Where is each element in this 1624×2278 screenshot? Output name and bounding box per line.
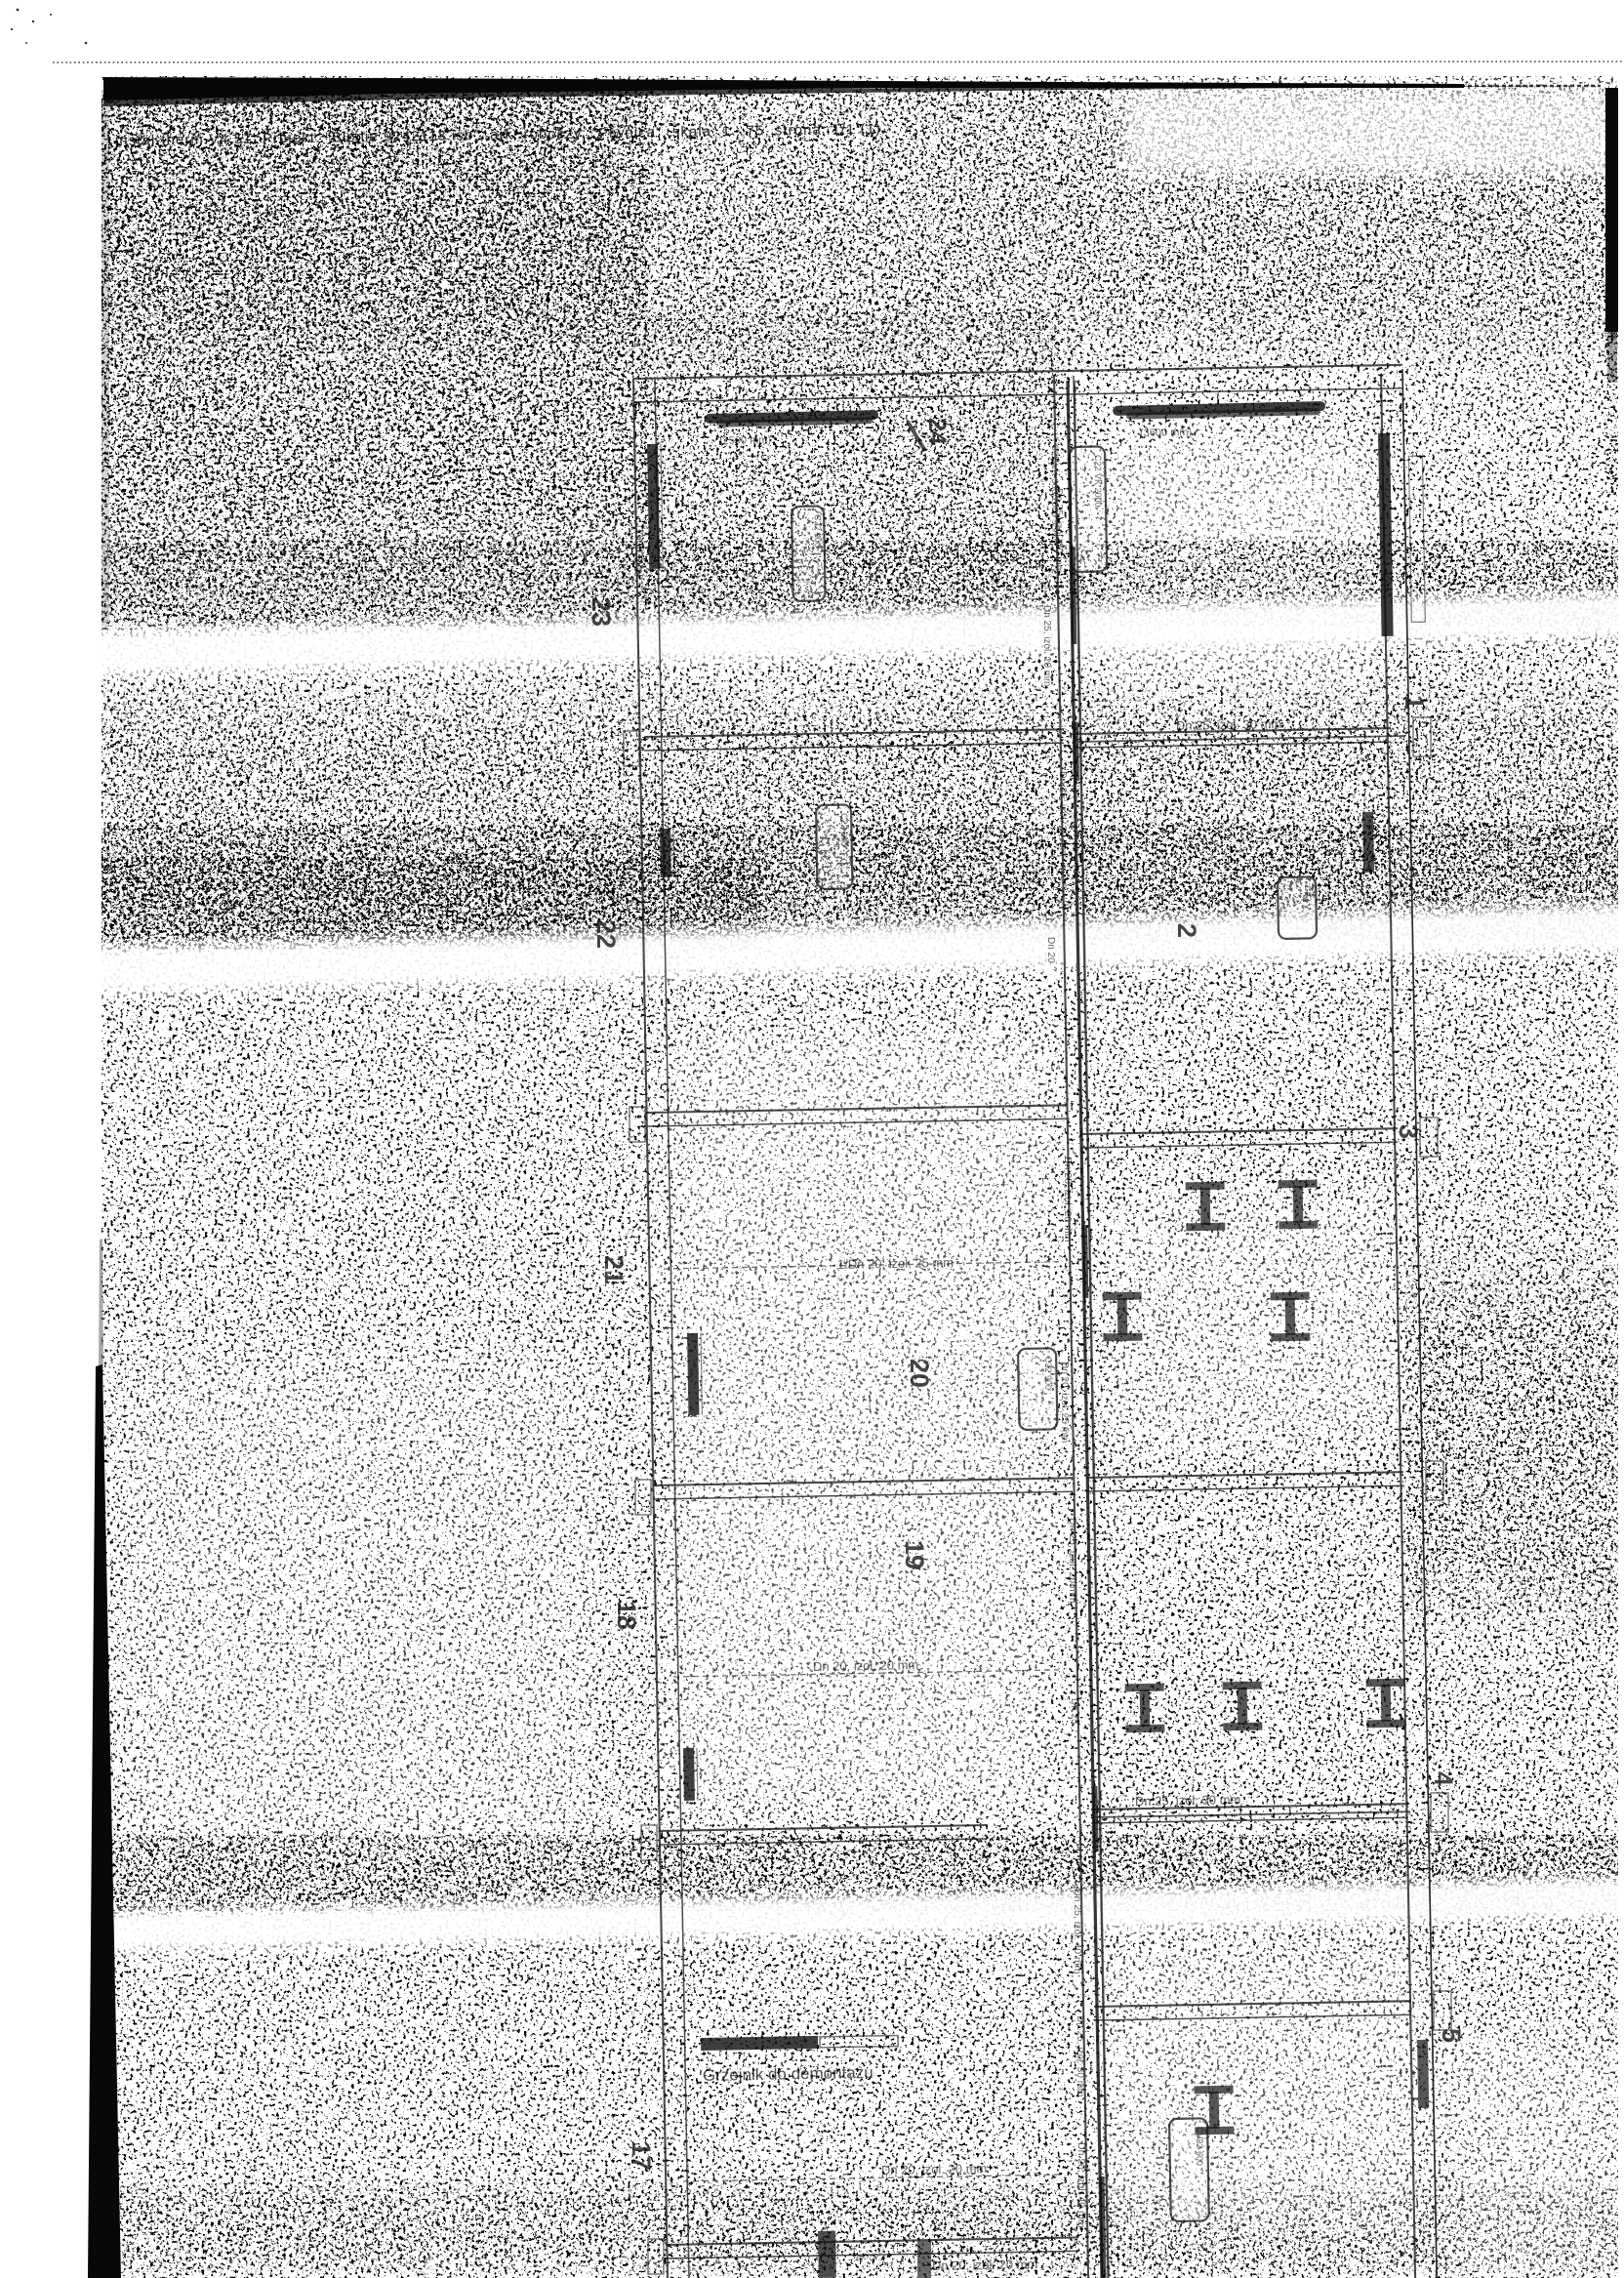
svg-text:Dn 20, izol. 20 mm: Dn 20, izol. 20 mm bbox=[1062, 1157, 1074, 1242]
svg-text:Dn 20, izol. 40 mm: Dn 20, izol. 40 mm bbox=[1076, 2142, 1087, 2228]
svg-text:Dn 20, izol. 20 mm: Dn 20, izol. 20 mm bbox=[932, 2257, 1038, 2273]
svg-text:C22 V: C22 V bbox=[1303, 885, 1313, 910]
svg-text:20: 20 bbox=[905, 1359, 934, 1388]
svg-text:Dn 25, izol. 40 mm: Dn 25, izol. 40 mm bbox=[1072, 1889, 1083, 1974]
svg-text:24: 24 bbox=[923, 418, 951, 445]
svg-text:Dn 25, izol. 20 mm: Dn 25, izol. 20 mm bbox=[1057, 771, 1069, 857]
svg-text:19: 19 bbox=[900, 1540, 929, 1569]
svg-text:3: 3 bbox=[1394, 1124, 1423, 1139]
svg-text:5: 5 bbox=[1437, 2028, 1466, 2043]
svg-text:C22 900: C22 900 bbox=[813, 514, 823, 548]
svg-text:C22 900: C22 900 bbox=[1043, 1357, 1053, 1390]
svg-text:23: 23 bbox=[587, 597, 616, 627]
svg-text:Dn 20, izol. 25 mm: Dn 20, izol. 25 mm bbox=[1059, 1362, 1070, 1443]
svg-text:Dn 25, izol. 30 mm: Dn 25, izol. 30 mm bbox=[1135, 1792, 1241, 1809]
svg-text:Dn 20: Dn 20 bbox=[1045, 937, 1056, 963]
svg-text:2: 2 bbox=[1172, 923, 1201, 938]
svg-text:1: 1 bbox=[1400, 695, 1429, 710]
svg-text:Grzejnik do demontażu: Grzejnik do demontażu bbox=[703, 2063, 873, 2085]
svg-text:4: 4 bbox=[1429, 1771, 1458, 1786]
svg-text:Dn 25: Dn 25 bbox=[1069, 1698, 1079, 1725]
svg-text:C22 600: C22 600 bbox=[839, 813, 849, 846]
svg-text:1/Dn 20, izol. 25 mm: 1/Dn 20, izol. 25 mm bbox=[837, 1255, 954, 1272]
svg-text:Dn 20, izol. 20 mm: Dn 20, izol. 20 mm bbox=[881, 2161, 988, 2177]
svg-text:Dn 25, izol. 30 mm: Dn 25, izol. 30 mm bbox=[1176, 716, 1282, 733]
svg-text:Dn 25, izol. 30 mm: Dn 25, izol. 30 mm bbox=[1075, 2015, 1085, 2096]
svg-text:17: 17 bbox=[627, 2141, 656, 2171]
svg-text:C22 VK 2000: C22 VK 2000 bbox=[1093, 455, 1103, 508]
svg-text:Dn 20, izol. 20 mm: Dn 20, izol. 20 mm bbox=[813, 1657, 919, 1674]
svg-text:Dn 25, izol. 20 mm: Dn 25, izol. 20 mm bbox=[1067, 1518, 1078, 1604]
svg-text:(3600 mm): (3600 mm) bbox=[1140, 427, 1192, 439]
svg-text:Dn 25, izol. 20 mm: Dn 25, izol. 20 mm bbox=[1041, 605, 1052, 686]
svg-text:21: 21 bbox=[599, 1255, 629, 1284]
svg-text:(2600 mm): (2600 mm) bbox=[633, 525, 645, 577]
svg-text:(2500 mm): (2500 mm) bbox=[719, 434, 771, 447]
svg-text:C22 VK 300/2000 95/65: C22 VK 300/2000 95/65 bbox=[1049, 444, 1060, 543]
svg-text:22: 22 bbox=[591, 919, 621, 949]
svg-text:18: 18 bbox=[612, 1601, 641, 1630]
